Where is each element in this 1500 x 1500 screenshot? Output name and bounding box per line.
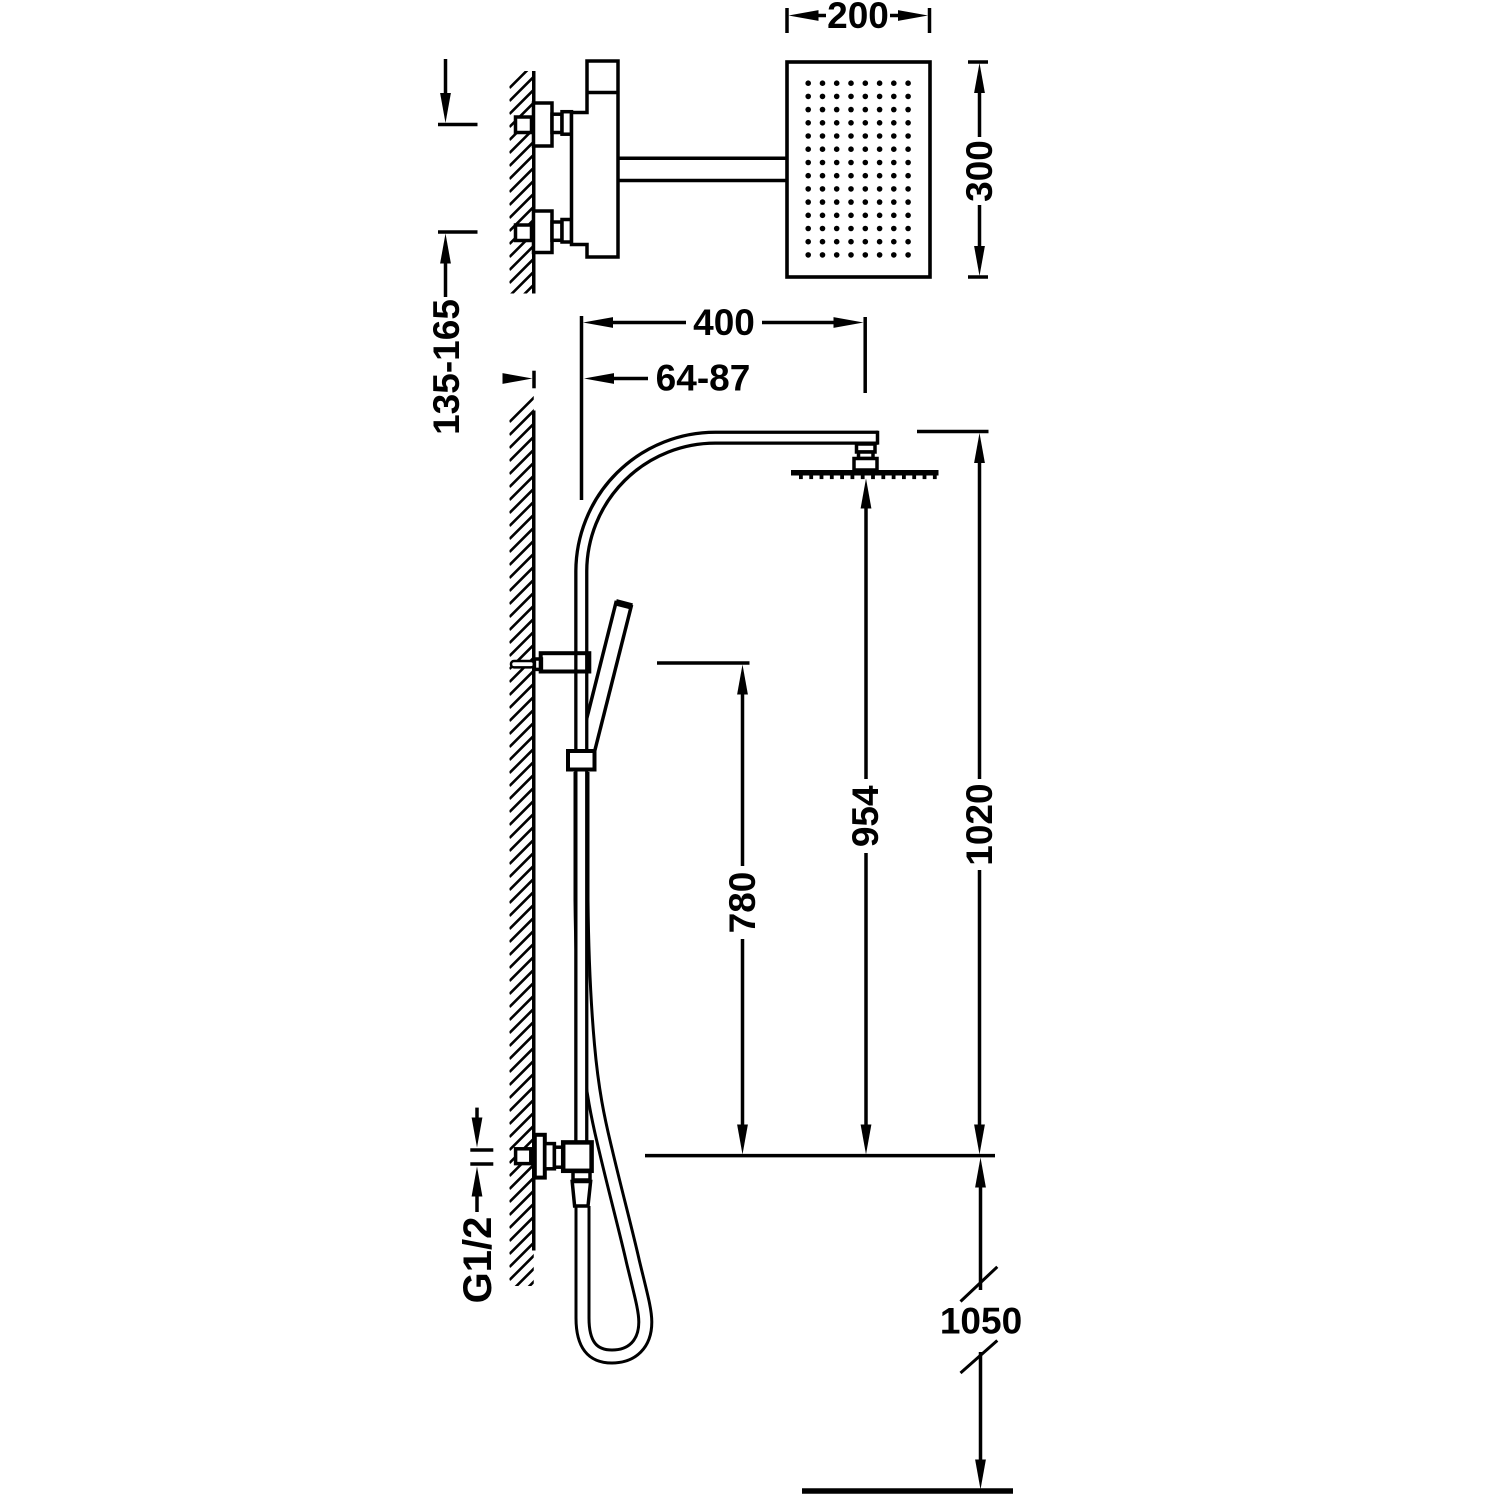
svg-text:200: 200 <box>827 0 889 36</box>
svg-text:G1/2: G1/2 <box>456 1217 500 1304</box>
svg-text:780: 780 <box>722 872 763 934</box>
svg-text:64-87: 64-87 <box>656 357 751 398</box>
svg-text:1020: 1020 <box>959 783 1000 865</box>
svg-text:135-165: 135-165 <box>426 299 467 435</box>
svg-text:300: 300 <box>959 140 1000 202</box>
svg-text:1050: 1050 <box>940 1301 1022 1342</box>
svg-text:400: 400 <box>693 302 755 343</box>
svg-text:954: 954 <box>845 785 886 847</box>
